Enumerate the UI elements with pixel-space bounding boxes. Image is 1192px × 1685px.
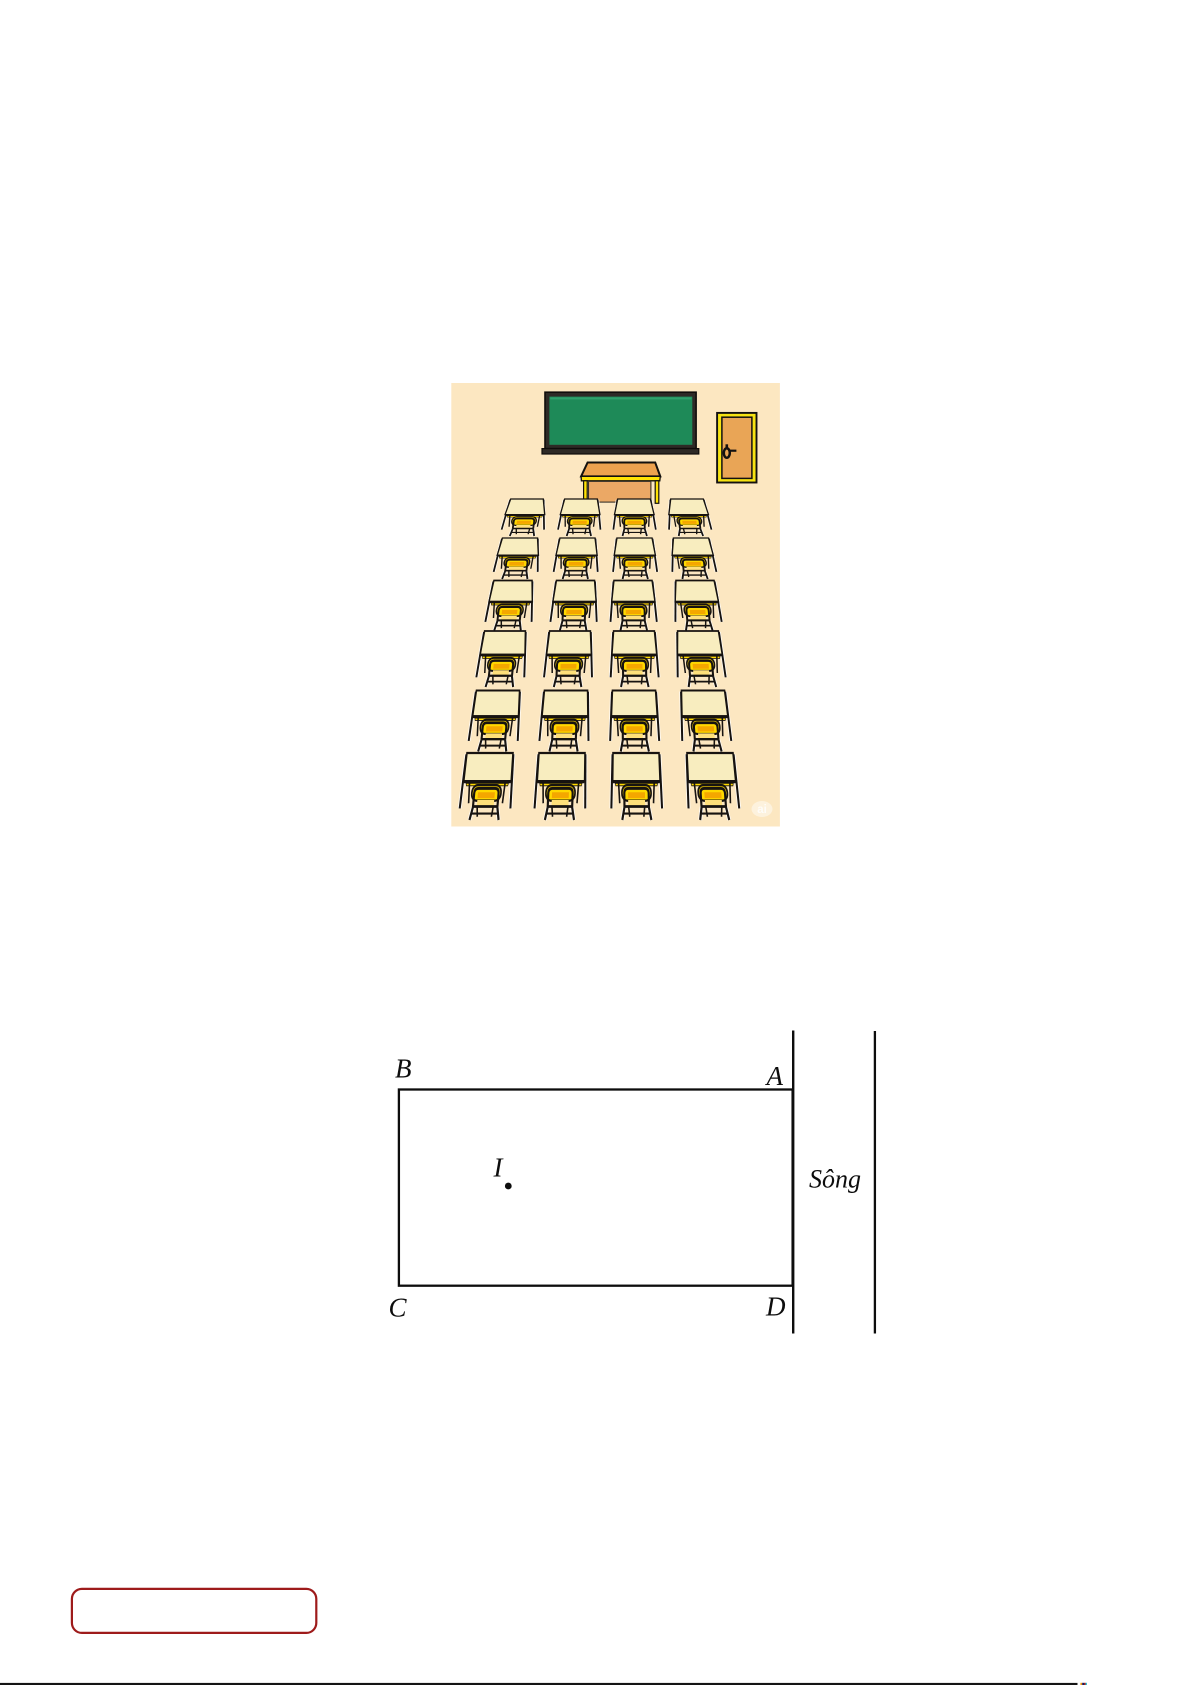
svg-text:I: I [493,1153,505,1183]
svg-text:C: C [389,1293,408,1323]
svg-text:B: B [395,1054,412,1084]
svg-text:D: D [765,1292,786,1322]
svg-text:ai: ai [757,804,767,816]
svg-text:A: A [765,1061,784,1091]
svg-text:Sông: Sông [809,1165,861,1194]
